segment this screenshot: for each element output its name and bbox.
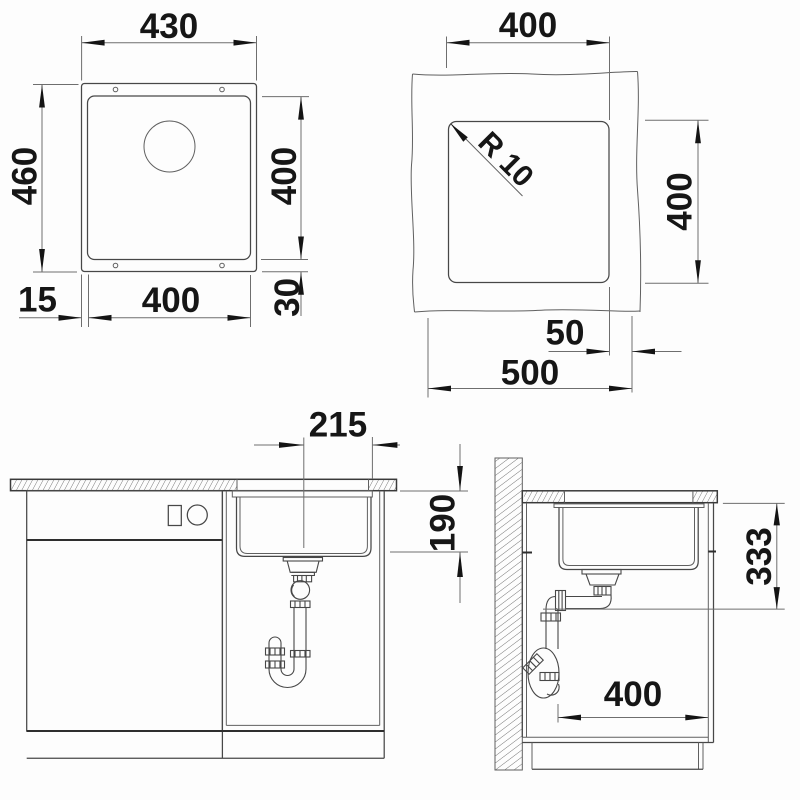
svg-text:50: 50 <box>546 314 585 353</box>
svg-text:400: 400 <box>499 6 557 45</box>
svg-text:333: 333 <box>740 527 779 585</box>
svg-text:400: 400 <box>142 281 200 320</box>
svg-text:215: 215 <box>309 406 367 445</box>
svg-text:190: 190 <box>424 494 463 552</box>
svg-text:400: 400 <box>604 675 662 714</box>
svg-text:15: 15 <box>18 281 57 320</box>
svg-text:460: 460 <box>6 147 45 205</box>
svg-text:400: 400 <box>661 172 700 230</box>
svg-text:30: 30 <box>268 278 307 317</box>
svg-text:430: 430 <box>140 7 198 46</box>
svg-text:500: 500 <box>501 354 559 393</box>
svg-text:400: 400 <box>265 147 304 205</box>
